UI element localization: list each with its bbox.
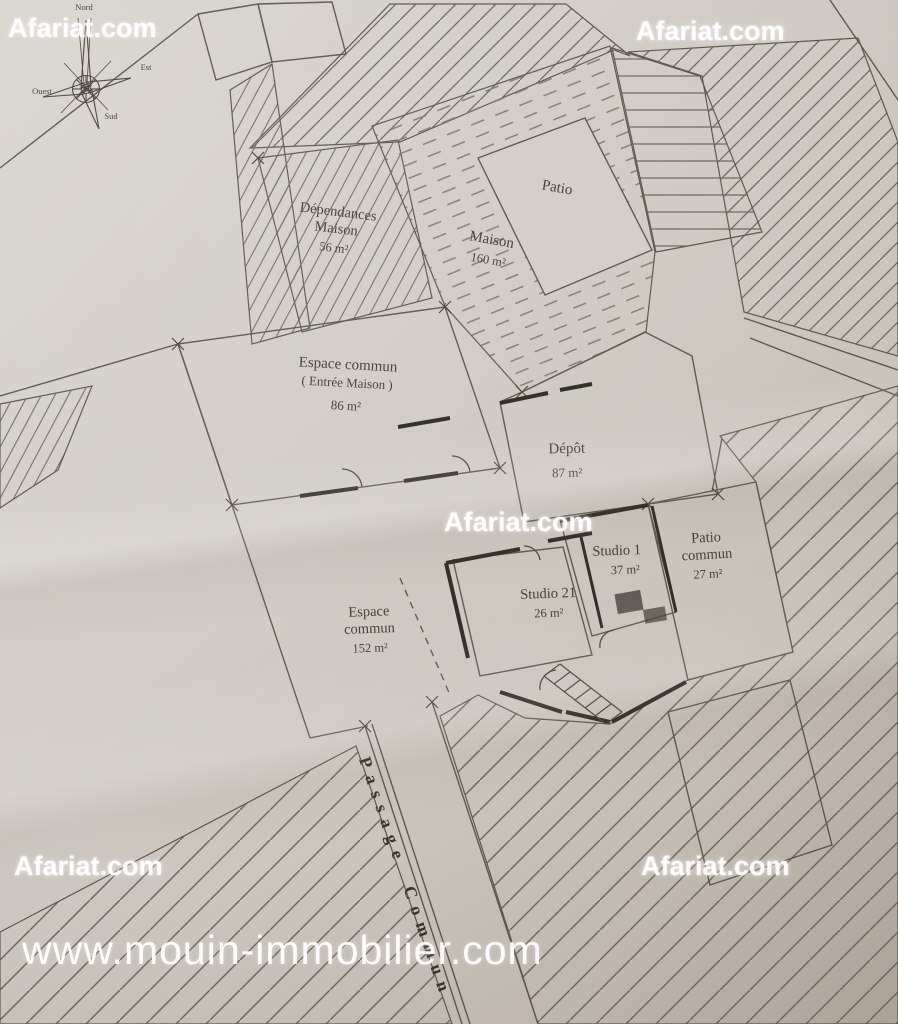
compass-west-label: Ouest	[16, 86, 68, 96]
room-name-line: Studio 1	[567, 541, 666, 562]
room-label-studio-1: Studio 1 37 m²	[567, 541, 666, 579]
compass-north-label: Nord	[58, 2, 110, 12]
compass-south-label: Sud	[90, 111, 132, 121]
afariat-watermark: Afariat.com	[636, 16, 785, 47]
compass-east-label: Est	[126, 62, 166, 72]
room-area: 87 m²	[512, 464, 622, 481]
room-label-patio-commun: Patio commun 27 m²	[656, 527, 759, 584]
afariat-watermark: Afariat.com	[641, 851, 790, 882]
room-label-studio-21: Studio 21 26 m²	[495, 584, 601, 623]
agency-website-watermark: www.mouin-immobilier.com	[22, 927, 543, 974]
afariat-watermark: Afariat.com	[8, 13, 157, 44]
room-label-espace-commun-86: Espace commun ( Entrée Maison ) 86 m²	[251, 352, 444, 418]
afariat-watermark: Afariat.com	[14, 851, 163, 882]
room-label-depot: Dépôt 87 m²	[512, 440, 623, 481]
floorplan-photo: Dépendances Maison 56 m² Maison 160 m² P…	[0, 0, 898, 1024]
afariat-watermark: Afariat.com	[444, 507, 593, 538]
room-label-espace-commun-152: Espace commun 152 m²	[316, 602, 423, 658]
room-name-line: Studio 21	[495, 584, 601, 605]
room-name-line: Dépôt	[512, 440, 622, 460]
room-name-line: commun	[317, 619, 423, 640]
